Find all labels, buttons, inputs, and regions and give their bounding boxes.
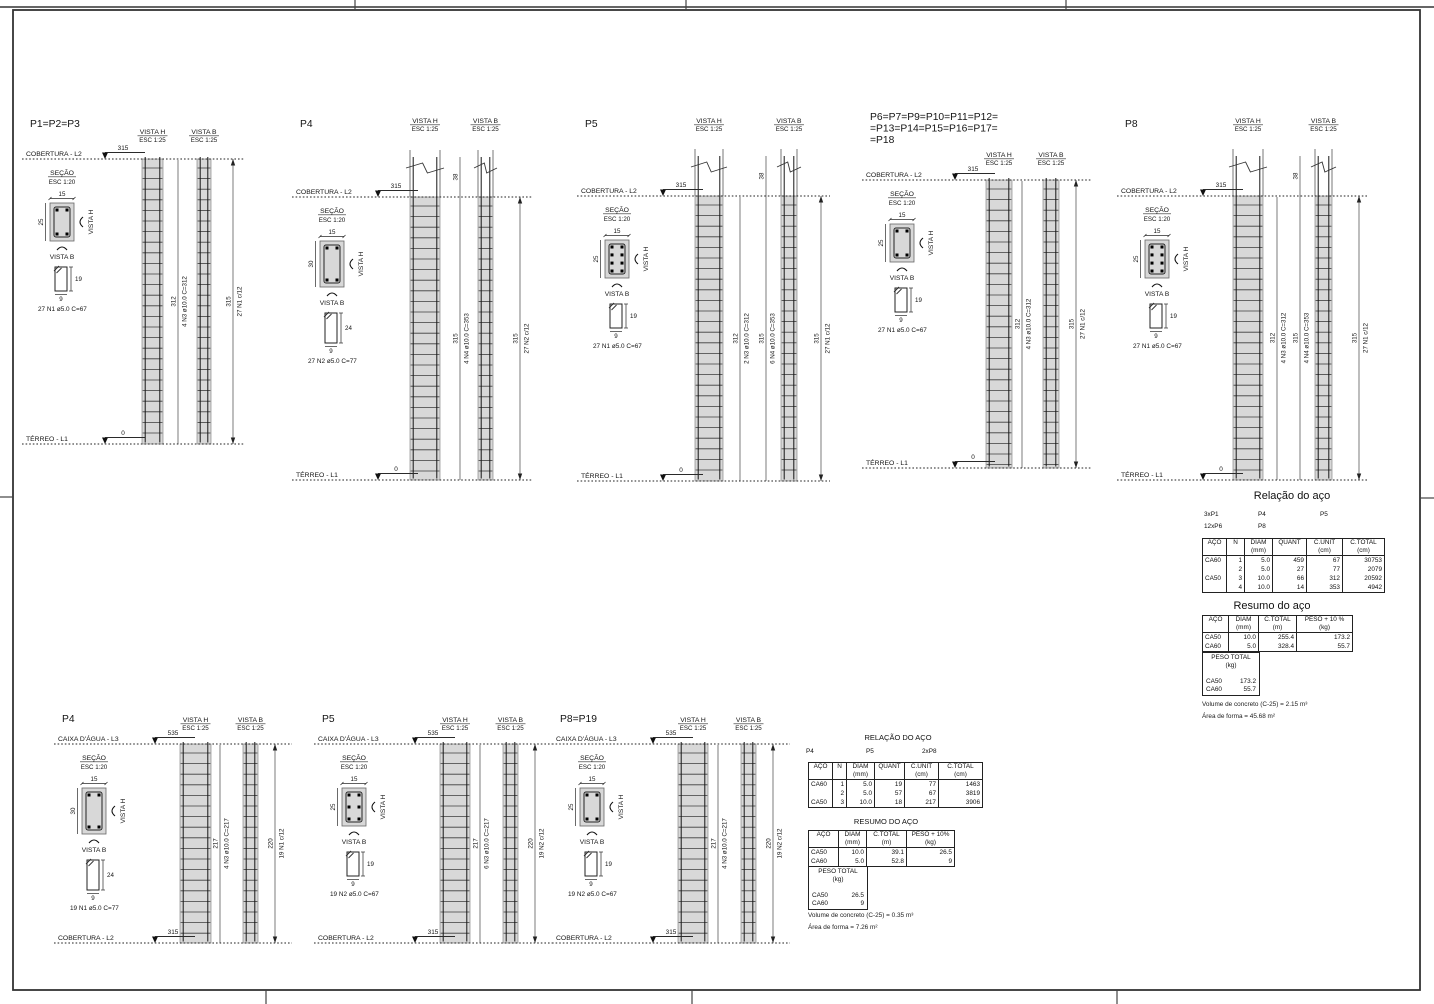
col-header: QUANT [875,763,905,772]
table-cell: 5.0 [1229,642,1259,652]
relacao-do-aco-wrap: AÇONDIAMQUANTC.UNITC.TOTAL(mm)(cm)(cm)CA… [1202,538,1385,593]
table-cell: 55.7 [1297,642,1353,652]
table-cell [809,789,833,798]
table-cell: CA60 [1203,642,1229,652]
table-cell: 66 [1273,574,1307,583]
table-cell: 18 [875,798,905,808]
table-row: 25.027772079 [1203,565,1385,574]
col-header: (kg) [1297,624,1353,633]
table-cell: 27 [1273,565,1307,574]
col-header: PESO + 10% [907,831,955,840]
table-cell: 30753 [1343,556,1385,566]
note: Área de forma = 7.26 m² [808,924,877,931]
relacao-do-aco-caixa-title: RELAÇÃO DO AÇO [864,733,931,742]
note: Área de forma = 45.68 m² [1202,713,1275,720]
table-cell: 255.4 [1259,633,1297,643]
col-header: C.TOTAL [1343,539,1385,548]
table-cell: 5.0 [847,789,875,798]
resumo-do-aco-caixa-table: AÇODIAMC.TOTALPESO + 10%(mm)(m)(kg)CA501… [808,830,955,867]
col-header: DIAM [839,831,867,840]
table-cell: 67 [905,789,939,798]
table-cell: 1 [1227,556,1245,566]
pilar-group-label: 12xP6 [1204,523,1222,530]
table-cell: 2 [833,789,847,798]
table-cell: 57 [875,789,905,798]
table-row: 25.057673819 [809,789,983,798]
steel-tables-layer: Relação do aço3xP1P4P512xP6P8AÇONDIAMQUA… [0,0,1434,1004]
table-row: CA5010.039.126.5 [809,848,955,858]
table-cell: 39.1 [867,848,907,858]
col-header: (cm) [905,771,939,780]
table-cell: 26.5 [907,848,955,858]
table-cell: 14 [1273,583,1307,593]
table-cell: 77 [1307,565,1343,574]
table-cell: 77 [905,780,939,790]
pilar-group-label: 3xP1 [1204,511,1219,518]
resumo-do-aco-caixa-peso-total: PESO TOTAL(kg)CA5026.5CA609 [808,866,868,910]
col-header [809,771,833,780]
table-cell: 4942 [1343,583,1385,593]
relacao-do-aco-caixa-table: AÇONDIAMQUANTC.UNITC.TOTAL(mm)(cm)(cm)CA… [808,762,983,808]
col-header: PESO + 10 % [1297,616,1353,625]
resumo-do-aco-caixa-wrap: AÇODIAMC.TOTALPESO + 10%(mm)(m)(kg)CA501… [808,830,955,867]
table-cell: 10.0 [847,798,875,808]
col-header: (cm) [939,771,983,780]
table-cell: 3819 [939,789,983,798]
table-cell: 5.0 [847,780,875,790]
col-header [875,771,905,780]
relacao-do-aco-title: Relação do aço [1254,490,1330,502]
col-header [809,839,839,848]
col-header: (mm) [1229,624,1259,633]
resumo-do-aco-title: Resumo do aço [1233,600,1310,612]
col-header: QUANT [1273,539,1307,548]
relacao-do-aco-caixa-wrap: AÇONDIAMQUANTC.UNITC.TOTAL(mm)(cm)(cm)CA… [808,762,983,808]
pilar-group-label: P4 [806,748,814,755]
table-cell: 4 [1227,583,1245,593]
table-row: 410.0143534942 [1203,583,1385,593]
table-cell: 173.2 [1297,633,1353,643]
table-cell: 3 [1227,574,1245,583]
col-header: (cm) [1343,547,1385,556]
col-header: AÇO [1203,616,1229,625]
col-header: (mm) [839,839,867,848]
table-cell: 217 [905,798,939,808]
table-row: CA605.0328.455.7 [1203,642,1353,652]
table-cell: 20592 [1343,574,1385,583]
resumo-do-aco-table: AÇODIAMC.TOTALPESO + 10 %(mm)(m)(kg)CA50… [1202,615,1353,652]
col-header: N [833,763,847,772]
col-header: AÇO [809,763,833,772]
col-header: (mm) [847,771,875,780]
note: Volume de concreto (C-25) = 0.35 m³ [808,912,913,919]
col-header: AÇO [809,831,839,840]
table-cell: 3 [833,798,847,808]
col-header [1273,547,1307,556]
col-header: DIAM [1245,539,1273,548]
table-cell: 1463 [939,780,983,790]
col-header: (m) [1259,624,1297,633]
table-cell: 67 [1307,556,1343,566]
table-cell: 5.0 [1245,556,1273,566]
pilar-group-label: P8 [1258,523,1266,530]
col-header [1203,547,1227,556]
col-header: (cm) [1307,547,1343,556]
table-cell: 2 [1227,565,1245,574]
resumo-do-aco-wrap: AÇODIAMC.TOTALPESO + 10 %(mm)(m)(kg)CA50… [1202,615,1353,652]
col-header: C.TOTAL [867,831,907,840]
table-cell: CA50 [809,798,833,808]
table-cell: CA50 [1203,633,1229,643]
table-cell: 2079 [1343,565,1385,574]
col-header: C.TOTAL [1259,616,1297,625]
table-cell: CA60 [809,780,833,790]
col-header: (m) [867,839,907,848]
table-cell [1203,583,1227,593]
col-header: N [1227,539,1245,548]
col-header [833,771,847,780]
resumo-do-aco-peso-total: PESO TOTAL(kg)CA50173.2CA6055.7 [1202,652,1260,696]
resumo-do-aco-caixa-title: RESUMO DO AÇO [854,817,918,826]
table-cell: 52.8 [867,857,907,867]
col-header: DIAM [1229,616,1259,625]
table-cell: CA60 [1203,556,1227,566]
table-row: CA6015.04596730753 [1203,556,1385,566]
table-cell: 1 [833,780,847,790]
note: Volume de concreto (C-25) = 2.15 m³ [1202,701,1307,708]
table-cell: 9 [907,857,955,867]
col-header: C.TOTAL [939,763,983,772]
table-cell [1203,565,1227,574]
table-cell: 10.0 [1229,633,1259,643]
col-header [1227,547,1245,556]
table-cell: 3906 [939,798,983,808]
table-row: CA50310.06631220592 [1203,574,1385,583]
col-header: C.UNIT [1307,539,1343,548]
table-cell: 10.0 [839,848,867,858]
table-row: CA5010.0255.4173.2 [1203,633,1353,643]
table-cell: 353 [1307,583,1343,593]
col-header: (mm) [1245,547,1273,556]
table-cell: 5.0 [1245,565,1273,574]
table-cell: 19 [875,780,905,790]
table-cell: 328.4 [1259,642,1297,652]
table-cell: 312 [1307,574,1343,583]
col-header: (kg) [907,839,955,848]
table-cell: 459 [1273,556,1307,566]
relacao-do-aco-table: AÇONDIAMQUANTC.UNITC.TOTAL(mm)(cm)(cm)CA… [1202,538,1385,593]
table-cell: CA50 [1203,574,1227,583]
col-header: AÇO [1203,539,1227,548]
pilar-group-label: 2xP8 [922,748,937,755]
pilar-group-label: P5 [866,748,874,755]
table-cell: 10.0 [1245,574,1273,583]
pilar-group-label: P4 [1258,511,1266,518]
table-cell: CA50 [809,848,839,858]
table-row: CA6015.019771463 [809,780,983,790]
pilar-group-label: P5 [1320,511,1328,518]
table-cell: 10.0 [1245,583,1273,593]
drawing-sheet: P1=P2=P3VISTA HESC 1:25VISTA BESC 1:2531… [0,0,1434,1004]
table-row: CA50310.0182173906 [809,798,983,808]
col-header [1203,624,1229,633]
col-header: C.UNIT [905,763,939,772]
col-header: DIAM [847,763,875,772]
